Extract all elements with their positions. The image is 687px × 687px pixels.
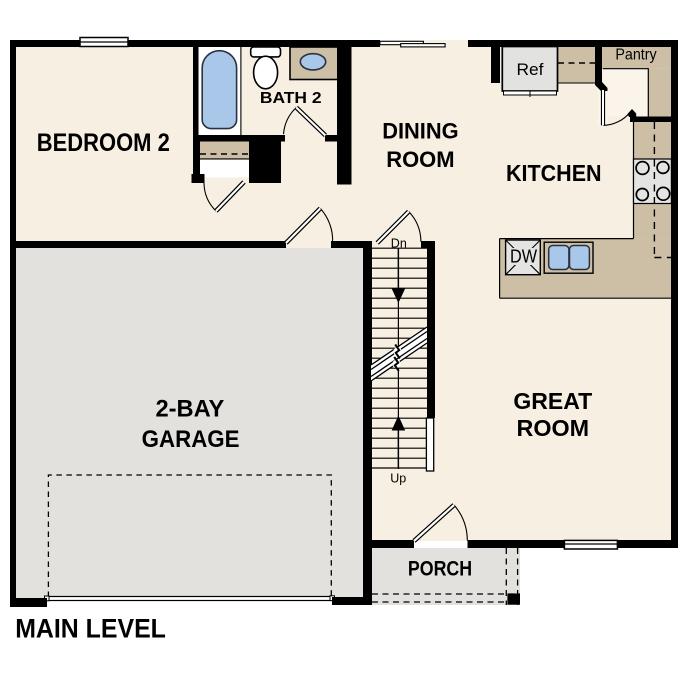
svg-text:BATH 2: BATH 2	[260, 90, 322, 107]
svg-text:Up: Up	[390, 472, 406, 486]
svg-text:DW: DW	[510, 247, 537, 267]
svg-text:2-BAY: 2-BAY	[155, 395, 224, 422]
svg-text:Dn: Dn	[391, 236, 407, 250]
svg-text:BEDROOM 2: BEDROOM 2	[37, 129, 170, 157]
svg-text:GREAT: GREAT	[513, 388, 593, 414]
svg-text:Ref: Ref	[517, 60, 544, 79]
svg-text:ROOM: ROOM	[386, 147, 454, 172]
svg-text:KITCHEN: KITCHEN	[506, 160, 602, 186]
svg-text:MAIN LEVEL: MAIN LEVEL	[15, 614, 166, 644]
svg-text:ROOM: ROOM	[517, 415, 590, 441]
svg-text:DINING: DINING	[382, 118, 458, 143]
svg-text:GARAGE: GARAGE	[142, 426, 240, 453]
svg-text:Pantry: Pantry	[615, 47, 656, 64]
svg-text:PORCH: PORCH	[408, 558, 472, 581]
